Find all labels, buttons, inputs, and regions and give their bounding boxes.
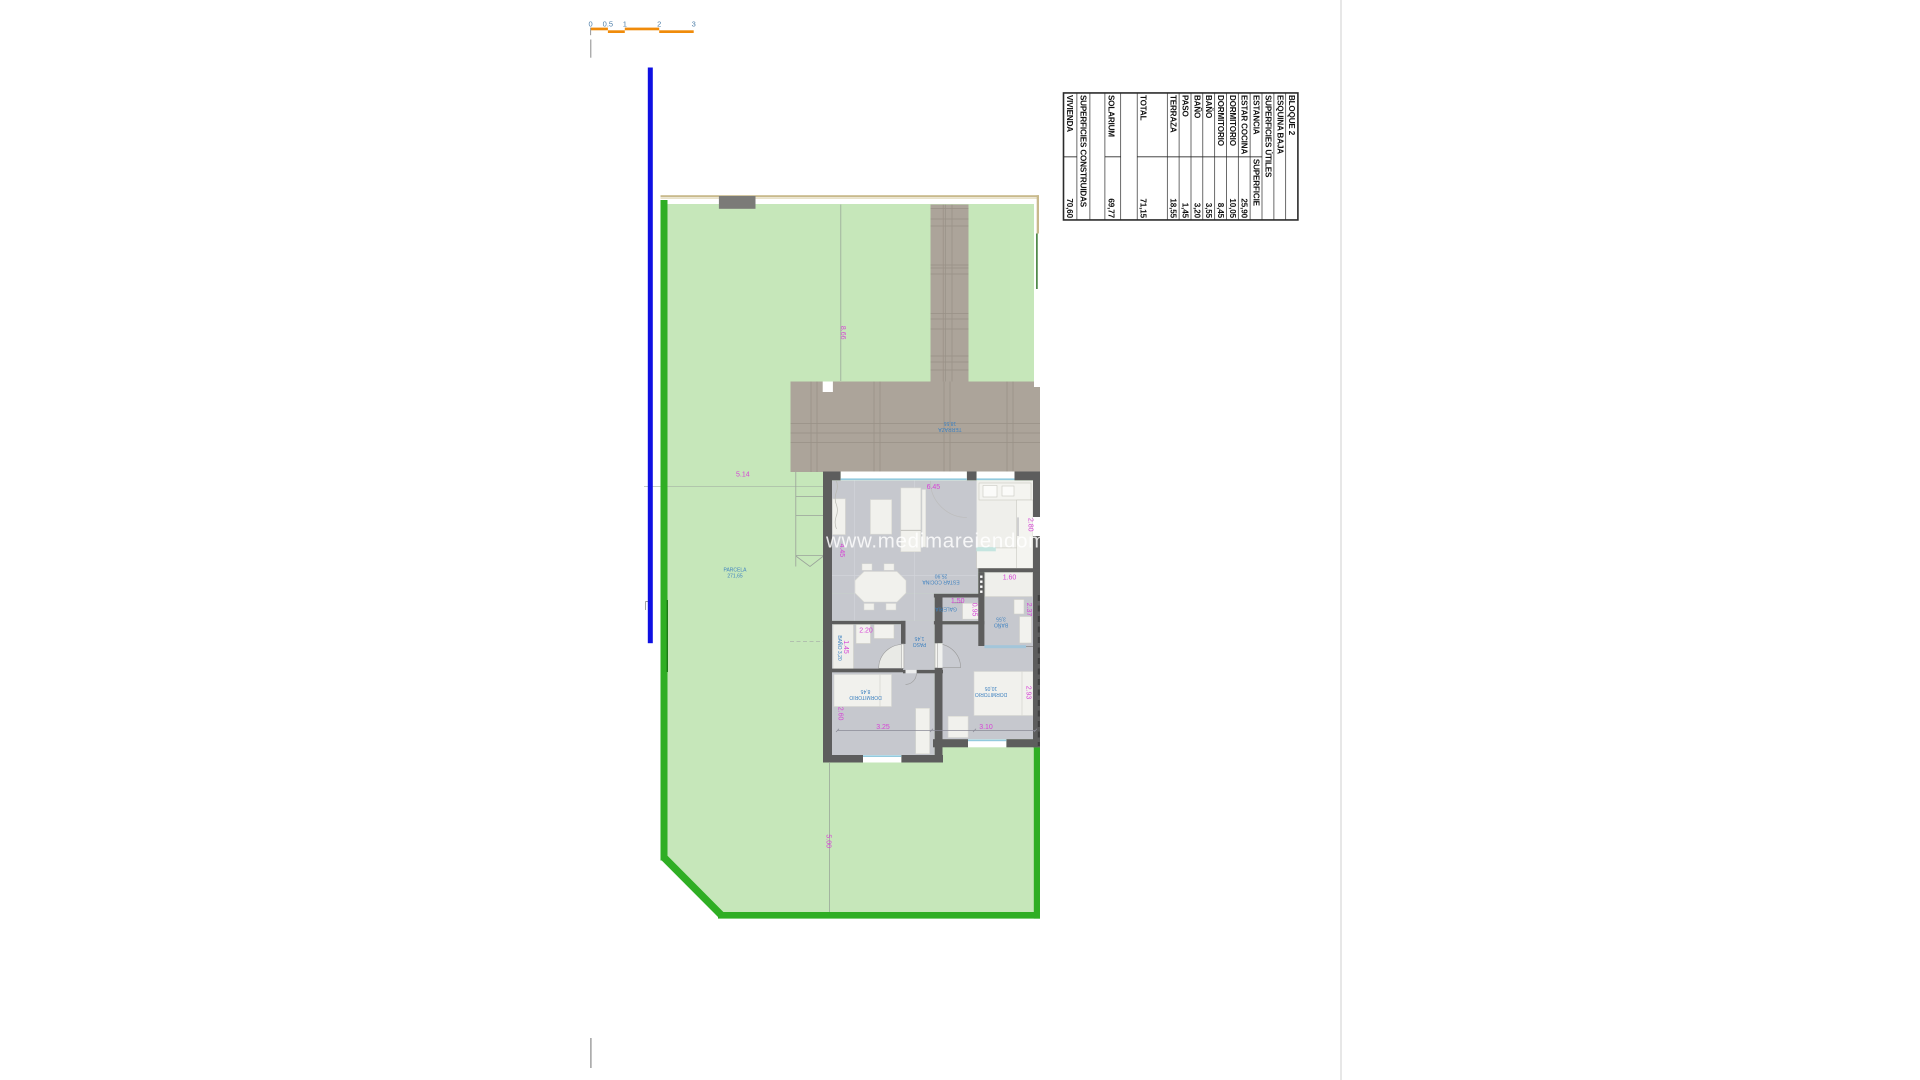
svg-text:3,55: 3,55: [996, 615, 1006, 621]
svg-text:2: 2: [657, 20, 661, 29]
svg-text:GALERIA: GALERIA: [935, 606, 957, 612]
svg-text:6.45: 6.45: [927, 484, 941, 491]
svg-text:3.25: 3.25: [876, 724, 890, 731]
svg-text:3,20: 3,20: [1192, 203, 1201, 219]
svg-text:1.60: 1.60: [1003, 575, 1017, 582]
svg-text:ESTANCIA: ESTANCIA: [1252, 95, 1261, 135]
svg-text:25,90: 25,90: [935, 573, 948, 579]
svg-text:271,65: 271,65: [727, 574, 743, 580]
svg-text:SOLARIUM: SOLARIUM: [1106, 95, 1115, 137]
svg-text:1.45: 1.45: [842, 640, 849, 654]
svg-text:5.14: 5.14: [736, 472, 750, 479]
svg-text:8.66: 8.66: [839, 326, 846, 340]
svg-text:BAÑO: BAÑO: [994, 621, 1008, 628]
svg-text:BAÑO 3,20: BAÑO 3,20: [836, 635, 843, 661]
svg-text:1.50: 1.50: [951, 598, 965, 605]
svg-text:2.37: 2.37: [1025, 603, 1032, 617]
svg-text:3: 3: [692, 20, 696, 29]
svg-text:18,55: 18,55: [944, 420, 957, 426]
svg-text:VIVIENDA: VIVIENDA: [1065, 95, 1074, 132]
svg-text:10,05: 10,05: [985, 685, 998, 691]
svg-text:2.20: 2.20: [859, 627, 873, 634]
svg-text:71,15: 71,15: [1139, 198, 1148, 218]
svg-text:ESTAR COCINA: ESTAR COCINA: [1240, 95, 1249, 155]
svg-text:ESQUINA BAJA: ESQUINA BAJA: [1275, 95, 1284, 154]
svg-text:5.00: 5.00: [825, 834, 832, 848]
svg-text:25,90: 25,90: [1240, 198, 1249, 218]
svg-text:DORMITORIO: DORMITORIO: [1228, 95, 1237, 146]
svg-text:1: 1: [623, 20, 627, 29]
svg-text:0.5: 0.5: [603, 20, 613, 29]
svg-text:TOTAL: TOTAL: [1139, 95, 1148, 121]
svg-text:10,05: 10,05: [1228, 198, 1237, 218]
svg-text:70,60: 70,60: [1065, 198, 1074, 218]
svg-text:SUPERFICIES CONSTRUIDAS: SUPERFICIES CONSTRUIDAS: [1078, 95, 1087, 208]
svg-text:2.60: 2.60: [836, 707, 843, 721]
svg-text:BAÑO: BAÑO: [1204, 95, 1213, 118]
svg-text:8,45: 8,45: [1216, 203, 1225, 219]
svg-text:69,77: 69,77: [1106, 198, 1115, 218]
svg-text:1,45: 1,45: [914, 635, 924, 641]
svg-text:www.medimareiendom: www.medimareiendom: [825, 529, 1046, 552]
svg-text:8,45: 8,45: [860, 688, 870, 694]
svg-text:TERRAZA: TERRAZA: [1169, 95, 1178, 133]
svg-text:3.10: 3.10: [979, 724, 993, 731]
svg-text:BLOQUE 2: BLOQUE 2: [1287, 95, 1296, 136]
svg-text:DORMITORIO: DORMITORIO: [1216, 95, 1225, 146]
svg-text:PASO: PASO: [1181, 95, 1190, 117]
svg-text:BAÑO: BAÑO: [1192, 95, 1201, 118]
svg-text:0.95: 0.95: [970, 603, 977, 617]
svg-text:0: 0: [589, 20, 593, 29]
svg-text:SUPERFICIE: SUPERFICIE: [1252, 159, 1261, 207]
svg-text:SUPERFICIES ÚTILES: SUPERFICIES ÚTILES: [1263, 95, 1272, 178]
svg-text:2.93: 2.93: [1025, 686, 1032, 700]
svg-text:1,45: 1,45: [1181, 203, 1190, 219]
svg-text:3,55: 3,55: [1204, 203, 1213, 219]
svg-text:18,55: 18,55: [1169, 198, 1178, 218]
